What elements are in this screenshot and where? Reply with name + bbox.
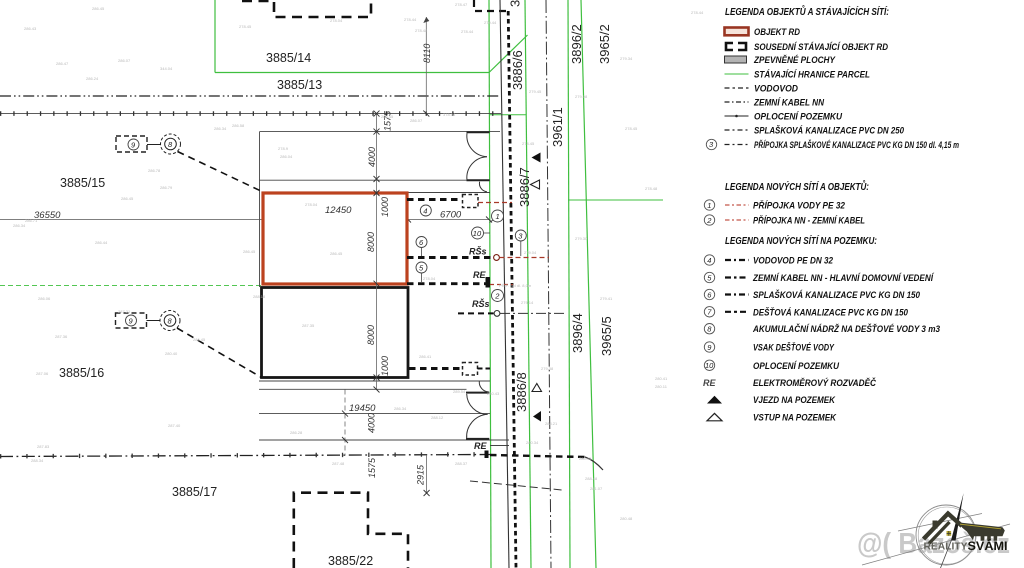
- svg-text:280.41: 280.41: [655, 376, 668, 381]
- svg-text:19450: 19450: [349, 403, 376, 414]
- svg-text:281.07: 281.07: [590, 486, 603, 491]
- svg-text:280.40: 280.40: [165, 351, 178, 356]
- svg-text:12450: 12450: [325, 205, 352, 216]
- svg-text:OBJEKT RD: OBJEKT RD: [754, 27, 800, 37]
- svg-text:286.43: 286.43: [24, 26, 37, 31]
- svg-text:288.18: 288.18: [253, 294, 266, 299]
- svg-text:287.21: 287.21: [118, 309, 131, 314]
- svg-text:279.44: 279.44: [484, 20, 497, 25]
- svg-text:3885/16: 3885/16: [59, 366, 104, 380]
- svg-text:SPLAŠKOVÁ KANALIZACE PVC KG DN: SPLAŠKOVÁ KANALIZACE PVC KG DN 150: [753, 289, 920, 300]
- svg-text:286.45: 286.45: [193, 337, 206, 342]
- svg-text:3885/13: 3885/13: [277, 78, 322, 92]
- svg-text:3885/14: 3885/14: [266, 51, 311, 65]
- svg-text:8110: 8110: [422, 44, 432, 63]
- svg-text:278.04: 278.04: [423, 276, 436, 281]
- svg-text:279.41: 279.41: [600, 296, 613, 301]
- svg-text:4: 4: [707, 256, 711, 265]
- svg-text:AKUMULAČNÍ NÁDRŽ NA DEŠŤOVÉ VO: AKUMULAČNÍ NÁDRŽ NA DEŠŤOVÉ VODY 3 m3: [752, 323, 940, 334]
- svg-text:2: 2: [494, 291, 500, 300]
- svg-text:280.11: 280.11: [655, 384, 668, 389]
- svg-text:286.07: 286.07: [410, 118, 423, 123]
- svg-text:LEGENDA NOVÝCH SÍTÍ NA POZEMKU: LEGENDA NOVÝCH SÍTÍ NA POZEMKU:: [725, 234, 877, 247]
- svg-text:8000: 8000: [366, 325, 376, 345]
- svg-text:278.48: 278.48: [645, 186, 658, 191]
- svg-text:2915: 2915: [416, 464, 426, 486]
- svg-text:ZPEVNĚNÉ PLOCHY: ZPEVNĚNÉ PLOCHY: [753, 54, 836, 65]
- svg-text:286.47: 286.47: [56, 61, 69, 66]
- svg-text:10: 10: [473, 229, 482, 238]
- svg-text:RE: RE: [474, 441, 487, 451]
- svg-text:278.44: 278.44: [404, 17, 417, 22]
- svg-text:3965/5: 3965/5: [599, 316, 614, 356]
- svg-text:ZEMNÍ KABEL NN: ZEMNÍ KABEL NN: [753, 98, 824, 108]
- svg-text:286.58: 286.58: [232, 123, 245, 128]
- svg-text:288.37: 288.37: [455, 461, 468, 466]
- svg-text:278.47: 278.47: [455, 2, 468, 7]
- svg-text:286.28: 286.28: [290, 430, 303, 435]
- svg-text:286.78: 286.78: [148, 168, 161, 173]
- svg-text:SPLAŠKOVÁ KANALIZACE PVC DN 25: SPLAŠKOVÁ KANALIZACE PVC DN 250: [754, 125, 904, 136]
- svg-text:3961/1: 3961/1: [550, 107, 565, 147]
- svg-text:286.79: 286.79: [160, 185, 173, 190]
- svg-text:3886/8: 3886/8: [514, 372, 529, 412]
- svg-text:286.41: 286.41: [419, 354, 432, 359]
- svg-text:278.04: 278.04: [305, 202, 318, 207]
- svg-text:287.40: 287.40: [168, 423, 181, 428]
- svg-text:279.14: 279.14: [521, 300, 534, 305]
- svg-text:286.34: 286.34: [394, 406, 407, 411]
- svg-text:286.34: 286.34: [13, 223, 26, 228]
- svg-text:286.45: 286.45: [121, 196, 134, 201]
- svg-text:288.12: 288.12: [431, 415, 444, 420]
- svg-text:ELEKTROMĚROVÝ ROZVADĚČ: ELEKTROMĚROVÝ ROZVADĚČ: [753, 377, 876, 388]
- svg-text:3886/6: 3886/6: [510, 50, 525, 90]
- svg-text:LEGENDA NOVÝCH SÍTÍ A OBJEKTŮ:: LEGENDA NOVÝCH SÍTÍ A OBJEKTŮ:: [725, 179, 869, 193]
- svg-text:286.45: 286.45: [92, 6, 105, 11]
- svg-text:2: 2: [706, 216, 712, 225]
- svg-text:287.06: 287.06: [36, 371, 49, 376]
- svg-text:1: 1: [496, 212, 500, 221]
- svg-text:287.48: 287.48: [332, 461, 345, 466]
- svg-text:288.21: 288.21: [545, 421, 558, 426]
- svg-text:3965/2: 3965/2: [597, 24, 612, 64]
- svg-text:279.45: 279.45: [529, 89, 542, 94]
- svg-text:286.24: 286.24: [86, 76, 99, 81]
- svg-text:378.04: 378.04: [443, 112, 456, 117]
- svg-text:279.34: 279.34: [620, 56, 633, 61]
- svg-text:286.44: 286.44: [95, 240, 108, 245]
- svg-text:286.04: 286.04: [280, 154, 293, 159]
- svg-text:280.34: 280.34: [526, 440, 539, 445]
- svg-text:VODOVOD PE DN 32: VODOVOD PE DN 32: [753, 256, 833, 266]
- svg-text:1000: 1000: [380, 356, 390, 376]
- svg-text:288.48: 288.48: [585, 476, 598, 481]
- svg-text:ZEMNÍ KABEL NN - HLAVNÍ DOMOVN: ZEMNÍ KABEL NN - HLAVNÍ DOMOVNÍ VEDENÍ: [752, 273, 934, 283]
- svg-text:PŘÍP. NN dl. 8,0m: PŘÍP. NN dl. 8,0m: [499, 283, 532, 288]
- svg-text:280.48: 280.48: [620, 516, 633, 521]
- svg-text:278.45: 278.45: [522, 141, 535, 146]
- svg-text:279.08: 279.08: [575, 94, 588, 99]
- svg-text:286.34: 286.34: [214, 126, 227, 131]
- svg-text:RE: RE: [473, 270, 486, 280]
- svg-text:289.54: 289.54: [453, 389, 466, 394]
- svg-text:287.83: 287.83: [37, 444, 50, 449]
- svg-text:VSAK DEŠŤOVÉ VODY: VSAK DEŠŤOVÉ VODY: [753, 342, 835, 353]
- svg-text:3896/2: 3896/2: [569, 24, 584, 64]
- svg-text:8000: 8000: [366, 232, 376, 252]
- svg-text:278.44: 278.44: [461, 29, 474, 34]
- svg-text:4: 4: [423, 206, 427, 215]
- svg-text:PŘÍPOJKA VODY PE 32: PŘÍPOJKA VODY PE 32: [753, 200, 845, 211]
- svg-text:278.44: 278.44: [691, 10, 704, 15]
- svg-text:279.30: 279.30: [575, 236, 588, 241]
- svg-text:1: 1: [707, 201, 711, 210]
- svg-text:OPLOCENÍ POZEMKU: OPLOCENÍ POZEMKU: [754, 112, 842, 122]
- svg-text:1000: 1000: [380, 197, 390, 217]
- svg-text:VODOVOD: VODOVOD: [754, 84, 798, 94]
- svg-text:286.45: 286.45: [381, 114, 394, 119]
- svg-text:VJEZD NA POZEMEK: VJEZD NA POZEMEK: [753, 395, 836, 405]
- svg-text:DEŠŤOVÁ KANALIZACE PVC KG DN 1: DEŠŤOVÁ KANALIZACE PVC KG DN 150: [753, 306, 908, 317]
- svg-text:3886/7: 3886/7: [517, 167, 532, 207]
- svg-text:3896/4: 3896/4: [570, 313, 585, 353]
- svg-text:REALITY: REALITY: [924, 542, 968, 553]
- svg-text:LEGENDA OBJEKTŮ A STÁVAJÍCÍCH: LEGENDA OBJEKTŮ A STÁVAJÍCÍCH SÍTÍ:: [725, 4, 889, 18]
- svg-text:STÁVAJÍCÍ HRANICE PARCEL: STÁVAJÍCÍ HRANICE PARCEL: [754, 70, 870, 80]
- svg-text:280.43: 280.43: [487, 391, 500, 396]
- svg-text:288.34: 288.34: [31, 458, 44, 463]
- svg-text:344.04: 344.04: [160, 66, 173, 71]
- svg-text:279.38: 279.38: [541, 366, 554, 371]
- svg-text:286.07: 286.07: [118, 58, 131, 63]
- svg-text:287.35: 287.35: [302, 323, 315, 328]
- svg-text:RŠs: RŠs: [469, 246, 487, 257]
- svg-text:3885/17: 3885/17: [172, 485, 217, 499]
- svg-text:280.45: 280.45: [579, 456, 592, 461]
- svg-text:VSTUP NA POZEMEK: VSTUP NA POZEMEK: [753, 413, 837, 423]
- svg-text:286.45: 286.45: [243, 249, 256, 254]
- svg-text:286.45: 286.45: [330, 251, 343, 256]
- svg-text:PŘÍPOJKA SPLAŠKOVÉ KANALIZACE: PŘÍPOJKA SPLAŠKOVÉ KANALIZACE PVC KG DN …: [754, 139, 959, 150]
- svg-text:3: 3: [508, 0, 523, 7]
- svg-text:278.45: 278.45: [625, 126, 638, 131]
- svg-text:286.06: 286.06: [38, 296, 51, 301]
- svg-text:287.36: 287.36: [55, 334, 68, 339]
- svg-text:RŠs: RŠs: [472, 298, 490, 309]
- svg-text:4000: 4000: [367, 147, 377, 167]
- svg-text:286.71: 286.71: [25, 218, 38, 223]
- svg-text:SVÁMI: SVÁMI: [968, 540, 1008, 553]
- svg-text:SOUSEDNÍ STÁVAJÍCÍ OBJEKT RD: SOUSEDNÍ STÁVAJÍCÍ OBJEKT RD: [754, 42, 888, 52]
- svg-text:3885/15: 3885/15: [60, 176, 105, 190]
- svg-text:278.48: 278.48: [415, 28, 428, 33]
- svg-text:278.04: 278.04: [330, 18, 343, 23]
- svg-text:OPLOCENÍ POZEMKU: OPLOCENÍ POZEMKU: [753, 361, 839, 371]
- svg-text:6700: 6700: [440, 210, 462, 221]
- svg-text:RE: RE: [703, 378, 716, 388]
- svg-text:1575: 1575: [367, 457, 377, 478]
- svg-text:36550: 36550: [34, 210, 61, 221]
- svg-text:PŘÍPOJKA NN - ZEMNÍ KABEL: PŘÍPOJKA NN - ZEMNÍ KABEL: [753, 215, 865, 226]
- svg-text:4000: 4000: [367, 413, 377, 433]
- svg-text:278.9: 278.9: [278, 146, 289, 151]
- svg-text:3885/22: 3885/22: [328, 554, 373, 568]
- svg-text:279.04: 279.04: [524, 250, 537, 255]
- svg-text:278.45: 278.45: [239, 24, 252, 29]
- svg-text:10: 10: [705, 361, 714, 370]
